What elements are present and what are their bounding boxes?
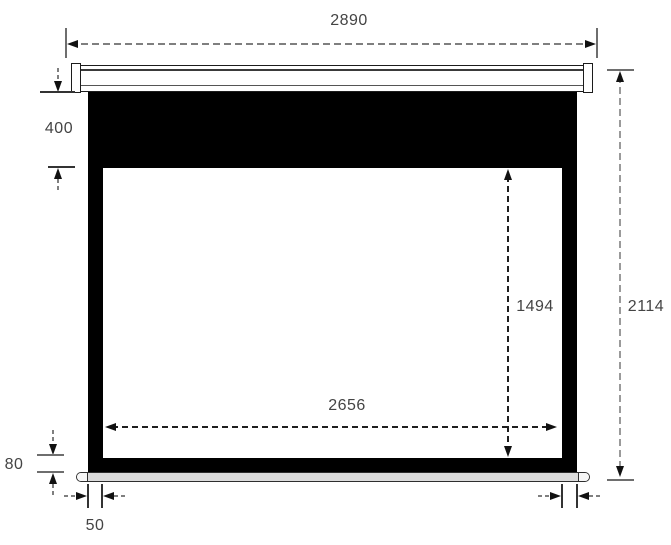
casing-end-cap-left: [71, 63, 81, 93]
viewing-area: [103, 168, 562, 458]
dim-bottom-border-tail-top: [52, 430, 54, 444]
dim-bottom-border-arrow-up: [49, 473, 57, 484]
dim-total-height-arrow-down: [616, 466, 624, 477]
screen-dimension-diagram: 2890 2114 1494 2656 400 80 50: [0, 0, 671, 545]
dim-viewing-width-label: 2656: [316, 398, 378, 414]
dim-overall-width-tick-right: [596, 28, 598, 58]
dim-side-border-right-arrow-left: [578, 492, 589, 500]
dim-drop-label: 400: [41, 121, 77, 137]
dim-side-border-tail-right: [114, 495, 127, 497]
dim-side-border-right-arrow-right: [550, 492, 561, 500]
bottom-weight-bar: [76, 472, 590, 482]
dim-side-border-arrow-right: [76, 492, 87, 500]
dim-viewing-width-arrow-right: [546, 423, 557, 431]
dim-viewing-height-arrow-up: [504, 169, 512, 180]
dim-overall-width-arrow-left: [67, 40, 78, 48]
dim-bottom-border-tail-bottom: [52, 484, 54, 498]
casing-profile-line-bottom: [73, 85, 591, 86]
dim-viewing-height-label: 1494: [515, 299, 555, 315]
dim-overall-width-arrow-right: [585, 40, 596, 48]
dim-side-border-right-tick-left: [561, 484, 563, 508]
dim-total-height-label: 2114: [626, 299, 666, 315]
dim-side-border-right-tail-right: [589, 495, 602, 497]
dim-viewing-height-arrow-down: [504, 446, 512, 457]
weight-bar-cap-left: [77, 473, 88, 481]
dim-side-border-label: 50: [80, 518, 110, 534]
dim-viewing-width-line: [112, 426, 552, 428]
dim-bottom-border-label: 80: [2, 457, 26, 473]
casing-profile-line-top: [73, 69, 591, 71]
dim-viewing-width-arrow-left: [105, 423, 116, 431]
dim-total-height-arrow-up: [616, 71, 624, 82]
dim-overall-width-line: [70, 43, 592, 45]
dim-drop-arrow-up: [54, 168, 62, 179]
dim-side-border-tick-left: [87, 484, 89, 508]
dim-viewing-height-line: [507, 176, 509, 448]
dim-side-border-arrow-left: [103, 492, 114, 500]
screen-casing: [72, 65, 592, 92]
casing-end-cap-right: [583, 63, 593, 93]
dim-drop-tick-top: [40, 91, 75, 93]
dim-total-height-line: [619, 76, 621, 472]
dim-total-height-tick-bottom: [607, 479, 634, 481]
weight-bar-cap-right: [578, 473, 589, 481]
dim-drop-tail-top: [57, 68, 59, 81]
dim-drop-tail-bottom: [57, 179, 59, 192]
dim-bottom-border-tick-top: [37, 454, 64, 456]
dim-overall-width-label: 2890: [318, 13, 380, 29]
